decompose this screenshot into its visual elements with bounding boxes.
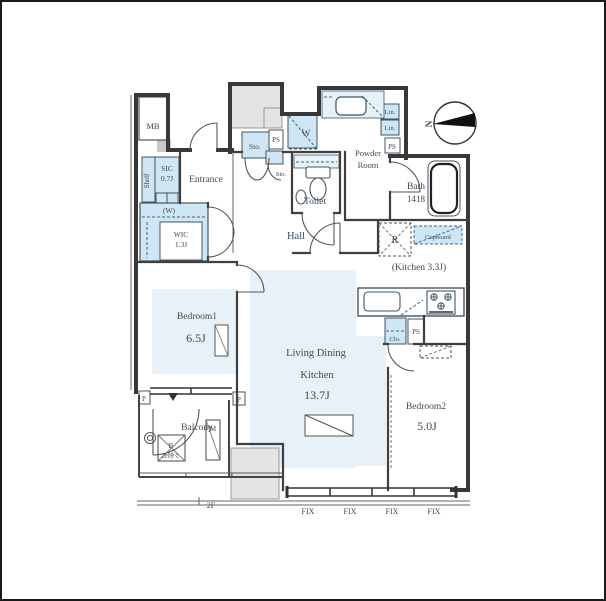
label-bedroom2: Bedroom2: [406, 402, 446, 412]
drain-cap-inner: [148, 436, 153, 441]
label-bedroom1: Bedroom1: [177, 312, 217, 322]
label-balcony: Balcony: [181, 423, 213, 433]
door-arc-wic: [208, 207, 234, 257]
label-wic-hanger: (W): [163, 206, 176, 215]
label-pillar-right: P: [237, 396, 241, 404]
fix-label-1: FIX: [344, 507, 357, 516]
fix-label-2: FIX: [386, 507, 399, 516]
label-ldk-line1: Living Dining: [286, 348, 347, 359]
label-shelf: Shelf: [143, 173, 151, 188]
door-arc-entrance: [190, 123, 217, 150]
mb-box: [139, 97, 167, 140]
floor-plan-page: MB Sto. PS Sto. W Lin. Lin. PS Powder Ro…: [0, 0, 606, 601]
label-sic: SIC: [161, 164, 173, 173]
label-b-note: 2F除く: [162, 452, 180, 460]
kitchen-sink: [364, 292, 400, 311]
label-ps-right: PS: [388, 143, 396, 151]
door-arc-storage: [245, 158, 269, 180]
label-entrance: Entrance: [189, 175, 223, 185]
fix-label-3: FIX: [428, 507, 441, 516]
label-washer: W: [302, 129, 311, 139]
label-cupboard: Cupboard: [425, 234, 451, 241]
label-b-unit: B: [169, 442, 174, 450]
label-ps-kitchen: PS: [412, 328, 420, 336]
label-storage: Sto.: [249, 142, 261, 151]
floor-tint-ldk: [250, 270, 356, 468]
label-storage-small: Sto.: [276, 171, 287, 178]
label-bedroom1-size: 6.5J: [186, 331, 206, 345]
label-wic: WIC: [174, 230, 189, 239]
label-ldk-size: 13.7J: [304, 388, 330, 402]
label-mb: MB: [146, 121, 160, 131]
label-refrigerator: R: [392, 235, 399, 246]
shaft-arm: [264, 108, 282, 128]
label-hall: Hall: [287, 231, 305, 242]
fix-windows: [287, 488, 456, 496]
label-powder-line1: Powder: [355, 148, 381, 158]
bathtub: [431, 164, 457, 213]
label-closet: Clo.: [389, 336, 400, 343]
label-powder-line2: Room: [358, 160, 379, 170]
label-sic-size: 0.7J: [161, 174, 173, 183]
label-meter: M: [210, 425, 217, 433]
compass-north-label: N: [424, 120, 434, 127]
label-floor-ref: 2F: [207, 501, 216, 510]
floor-tint-ldk-east: [356, 336, 386, 466]
compass-icon: [433, 102, 476, 144]
label-pillar-left: P: [142, 395, 146, 403]
label-bath-size: 1418: [407, 194, 426, 204]
label-bath: Bath: [407, 182, 425, 192]
toilet-tank: [306, 167, 330, 178]
label-ps-center: PS: [272, 136, 280, 144]
label-linen-top: Lin.: [385, 109, 396, 116]
label-kitchen: (Kitchen 3.3J): [392, 262, 446, 273]
door-arc-bedroom2: [388, 345, 414, 371]
vanity-sink: [336, 97, 366, 115]
door-arc-toilet: [302, 213, 334, 245]
label-toilet: Toilet: [304, 197, 326, 207]
label-ldk-line2: Kitchen: [300, 370, 334, 381]
fix-label-0: FIX: [302, 507, 315, 516]
label-linen-bottom: Lin.: [385, 125, 396, 132]
floor-plan-svg: MB Sto. PS Sto. W Lin. Lin. PS Powder Ro…: [0, 0, 606, 601]
bedroom1-balcony-window: [150, 388, 232, 394]
door-arc-hall: [310, 223, 340, 253]
label-wic-size: 1.3J: [175, 240, 187, 249]
drain-cap: [145, 433, 156, 444]
label-bedroom2-size: 5.0J: [417, 419, 437, 433]
